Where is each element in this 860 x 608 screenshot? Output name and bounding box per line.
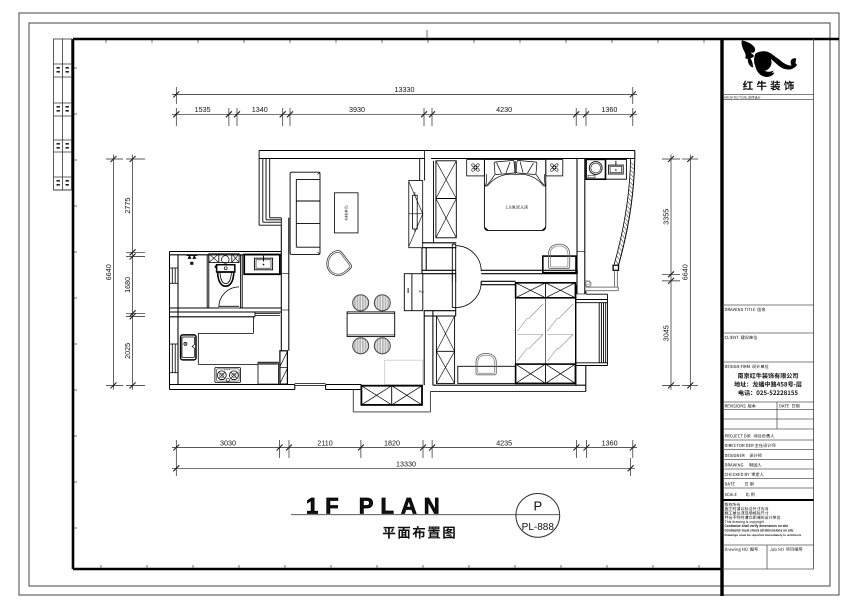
svg-text:1360: 1360 bbox=[601, 105, 617, 114]
svg-text:1680: 1680 bbox=[123, 277, 132, 293]
svg-text:Contractor must check all dime: Contractor must check all dimensions on … bbox=[725, 529, 794, 533]
svg-text:2775: 2775 bbox=[123, 198, 132, 214]
svg-text:4235: 4235 bbox=[496, 439, 512, 448]
svg-text:1340: 1340 bbox=[252, 105, 268, 114]
svg-text:Contractor shall verify dimens: Contractor shall verify dimensions on si… bbox=[725, 524, 789, 528]
svg-text:1820: 1820 bbox=[384, 439, 400, 448]
svg-text:P: P bbox=[533, 499, 542, 514]
svg-text:13330: 13330 bbox=[395, 85, 415, 94]
svg-text:13330: 13330 bbox=[396, 459, 416, 468]
svg-text:3030: 3030 bbox=[220, 439, 236, 448]
svg-text:3045: 3045 bbox=[661, 325, 670, 341]
svg-text:3930: 3930 bbox=[349, 105, 365, 114]
svg-text:Drawings must be reported imme: Drawings must be reported immediately to… bbox=[725, 533, 802, 537]
svg-text:2: 2 bbox=[418, 290, 424, 293]
svg-text:6640: 6640 bbox=[681, 264, 690, 280]
svg-text:2025: 2025 bbox=[123, 343, 132, 359]
svg-text:4230: 4230 bbox=[496, 105, 512, 114]
svg-text:6640: 6640 bbox=[104, 264, 113, 280]
svg-text:PL-888: PL-888 bbox=[522, 522, 555, 533]
svg-text:2110: 2110 bbox=[317, 439, 332, 448]
svg-text:3355: 3355 bbox=[661, 209, 670, 225]
svg-text:1535: 1535 bbox=[195, 105, 211, 114]
svg-text:1360: 1360 bbox=[602, 439, 618, 448]
